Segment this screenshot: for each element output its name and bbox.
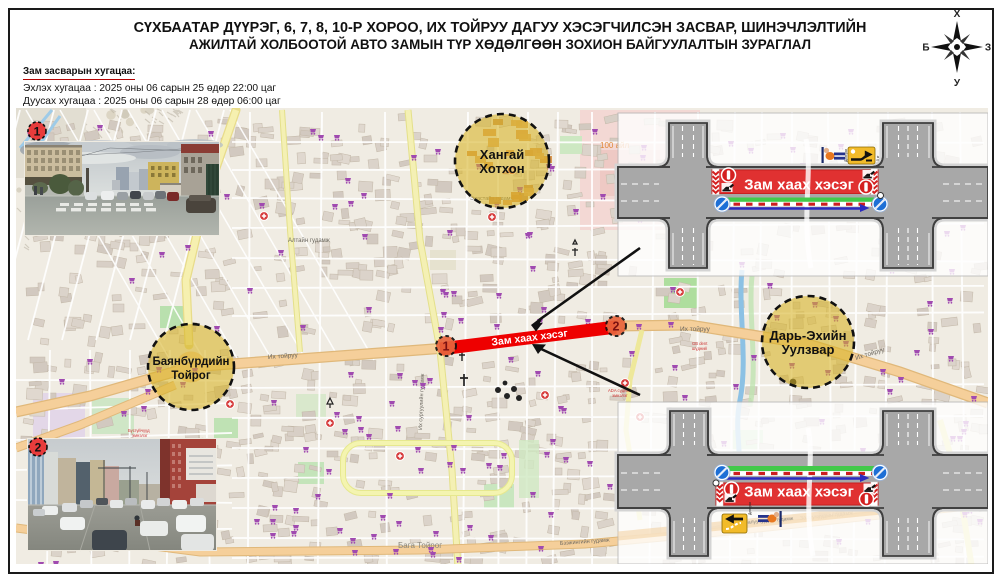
svg-text:Зам хаах хэсэг: Зам хаах хэсэг <box>744 484 854 501</box>
svg-text:Бага Тойрог: Бага Тойрог <box>398 541 442 550</box>
svg-text:5 кг: 5 кг <box>876 155 880 161</box>
svg-text:2: 2 <box>613 320 620 334</box>
svg-text:Хангай: Хангай <box>480 147 524 162</box>
svg-text:Алтайн гудамж: Алтайн гудамж <box>288 237 330 244</box>
svg-text:шүдний: шүдний <box>692 346 708 351</box>
svg-text:Дарь-Эхийн: Дарь-Эхийн <box>769 328 846 343</box>
svg-text:Диверси: Диверси <box>748 502 752 515</box>
svg-text:Б: Б <box>922 43 929 54</box>
svg-text:эмнэлэг: эмнэлэг <box>612 393 628 398</box>
svg-text:1: 1 <box>34 125 41 139</box>
svg-text:Тойрог: Тойрог <box>171 370 210 382</box>
svg-text:Диверси: Диверси <box>844 149 848 162</box>
svg-text:Баянбүрдийн: Баянбүрдийн <box>153 356 230 368</box>
svg-text:З: З <box>985 43 991 54</box>
svg-text:эмнэлэг: эмнэлэг <box>132 433 148 438</box>
svg-text:У: У <box>954 78 961 89</box>
svg-text:Их тойруу: Их тойруу <box>680 325 711 333</box>
svg-text:1: 1 <box>443 340 450 354</box>
svg-text:Зам хаах хэсэг: Зам хаах хэсэг <box>744 177 854 194</box>
svg-text:Уулзвар: Уулзвар <box>782 342 835 357</box>
svg-text:Хотхон: Хотхон <box>479 161 524 176</box>
svg-text:2: 2 <box>35 441 42 455</box>
svg-text:Х: Х <box>954 9 961 20</box>
